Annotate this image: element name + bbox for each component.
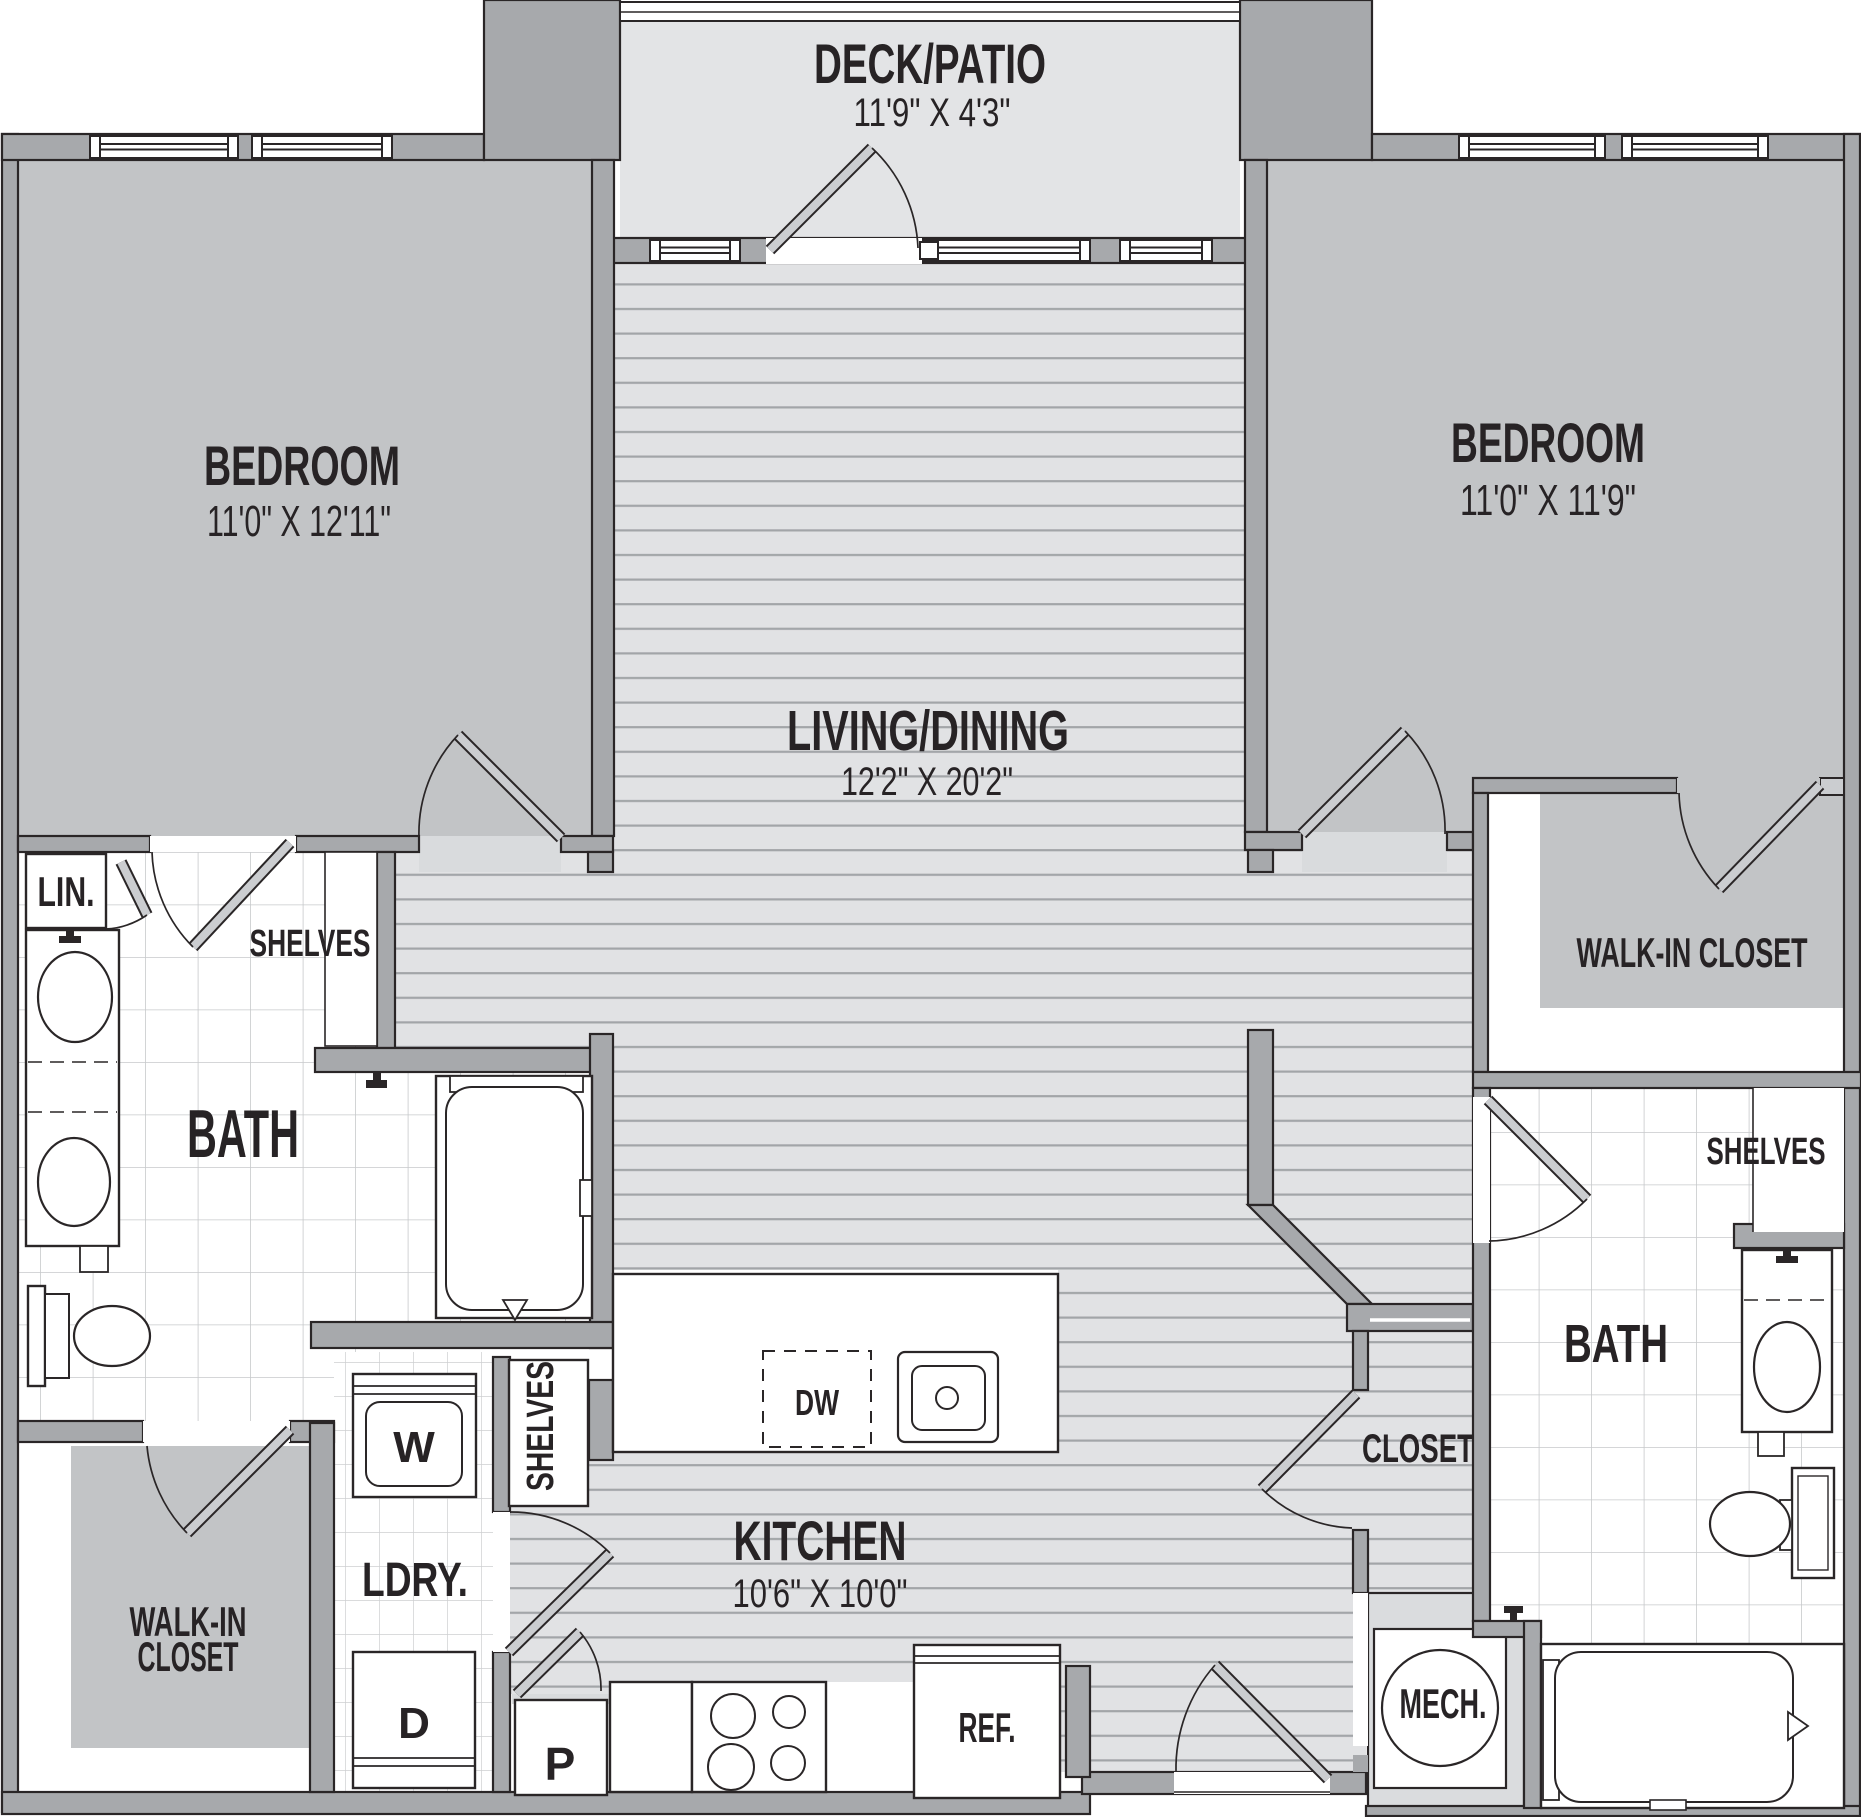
svg-text:CLOSET: CLOSET (138, 1633, 239, 1680)
svg-text:11'0" X 12'11": 11'0" X 12'11" (207, 497, 391, 546)
svg-text:P: P (545, 1738, 576, 1790)
svg-text:MECH.: MECH. (1400, 1680, 1487, 1727)
svg-text:BEDROOM: BEDROOM (204, 434, 400, 497)
svg-text:LIVING/DINING: LIVING/DINING (787, 699, 1069, 763)
svg-text:12'2" X 20'2": 12'2" X 20'2" (841, 760, 1013, 804)
svg-text:BATH: BATH (187, 1096, 299, 1172)
svg-text:D: D (398, 1699, 430, 1748)
svg-text:WALK-IN CLOSET: WALK-IN CLOSET (1577, 929, 1808, 976)
svg-text:SHELVES: SHELVES (520, 1361, 562, 1491)
svg-text:BATH: BATH (1564, 1314, 1668, 1374)
svg-text:10'6" X 10'0": 10'6" X 10'0" (733, 1572, 908, 1616)
svg-text:11'9" X 4'3": 11'9" X 4'3" (854, 91, 1011, 135)
svg-text:CLOSET: CLOSET (1362, 1427, 1474, 1471)
svg-text:DW: DW (795, 1382, 839, 1423)
svg-text:SHELVES: SHELVES (250, 923, 371, 965)
svg-text:BEDROOM: BEDROOM (1451, 411, 1645, 474)
svg-text:LIN.: LIN. (38, 868, 95, 915)
svg-text:KITCHEN: KITCHEN (734, 1509, 907, 1572)
svg-text:DECK/PATIO: DECK/PATIO (814, 32, 1046, 95)
svg-text:W: W (393, 1423, 435, 1472)
svg-text:11'0" X 11'9": 11'0" X 11'9" (1460, 476, 1636, 525)
svg-text:LDRY.: LDRY. (362, 1554, 468, 1607)
svg-text:REF.: REF. (959, 1704, 1016, 1751)
svg-text:SHELVES: SHELVES (1707, 1131, 1826, 1173)
